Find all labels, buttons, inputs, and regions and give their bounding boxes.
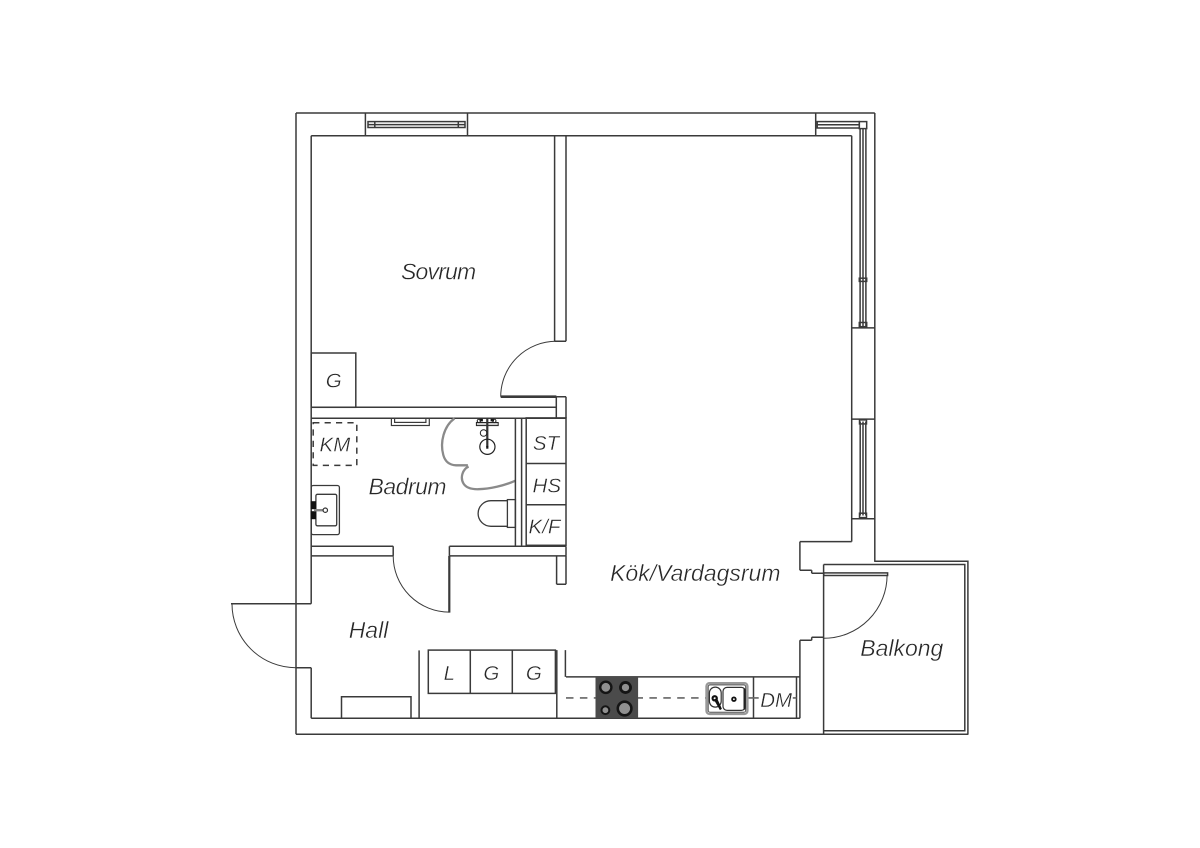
svg-text:L: L bbox=[444, 662, 455, 685]
svg-text:G: G bbox=[483, 662, 499, 685]
svg-text:Hall: Hall bbox=[349, 617, 390, 643]
svg-text:KM: KM bbox=[320, 433, 352, 456]
svg-text:Balkong: Balkong bbox=[860, 635, 943, 661]
svg-text:Kök/Vardagsrum: Kök/Vardagsrum bbox=[610, 560, 780, 586]
svg-text:HS: HS bbox=[533, 475, 562, 498]
svg-text:ST: ST bbox=[533, 432, 561, 455]
svg-text:Badrum: Badrum bbox=[369, 474, 447, 500]
svg-text:Sovrum: Sovrum bbox=[401, 259, 476, 285]
svg-text:G: G bbox=[326, 370, 342, 393]
svg-text:K/F: K/F bbox=[529, 515, 562, 538]
svg-text:G: G bbox=[526, 662, 542, 685]
svg-text:DM: DM bbox=[760, 689, 793, 712]
